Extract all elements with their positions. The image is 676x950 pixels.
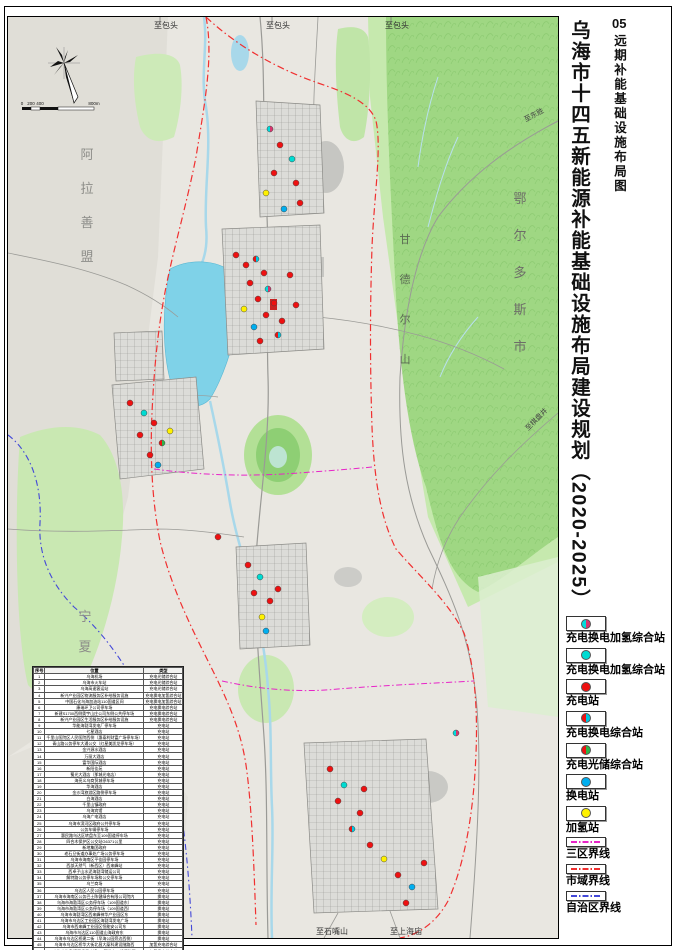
station-marker-hs — [263, 190, 269, 196]
svg-text:400: 400 — [36, 101, 44, 106]
legend-item-4: 充电光储综合站 — [566, 743, 670, 772]
station-marker-bs — [281, 206, 287, 212]
cell-type: 充电光储综合站 — [144, 680, 183, 686]
legend-item-0: 充电换电加氢综合站 — [566, 616, 670, 645]
legend-line-symbol — [566, 864, 606, 874]
station-marker-cs — [243, 262, 249, 268]
station-marker-cs — [277, 142, 283, 148]
legend-item-8: 市域界线 — [566, 864, 670, 888]
industrial-mid — [334, 567, 362, 587]
table-col-header: 序号 — [34, 668, 45, 674]
legend-label: 充电光储综合站 — [566, 759, 670, 772]
hill-center-pond — [269, 446, 287, 468]
cell-type: 加氢充电综合站 — [144, 942, 183, 948]
station-marker-cs — [245, 562, 251, 568]
station-marker-cs — [327, 766, 333, 772]
station-table: 序号位置类型 1乌海机场充电光储综合站2乌海市火车站充电光储综合站3乌海高速客运… — [33, 667, 183, 950]
station-marker-cs — [287, 272, 293, 278]
map-label: 至包头 — [385, 20, 409, 30]
station-marker-bs — [251, 324, 257, 330]
table-row: 45乌海市乌达区桥华大街北昌大厦科建设隧路西加氢充电综合站 — [34, 942, 183, 948]
station-marker-bs — [263, 628, 269, 634]
station-marker-cs — [297, 200, 303, 206]
station-marker-bs — [155, 462, 161, 468]
table-row: 37乌海市海南区公务巴士陈健绿合有限公司院内换电站 — [34, 893, 183, 899]
station-marker-chc — [257, 574, 263, 580]
station-marker-chc — [289, 156, 295, 162]
station-dot-icon — [581, 777, 591, 787]
station-marker-cs — [357, 810, 363, 816]
legend-label: 充电换电加氢综合站 — [566, 664, 670, 677]
cell-location: 乌海市海南区公务巴士陈健绿合有限公司院内 — [45, 893, 144, 899]
station-marker-cs — [293, 302, 299, 308]
station-marker-cs — [247, 280, 253, 286]
station-marker-cs — [257, 338, 263, 344]
station-marker-chc — [141, 410, 147, 416]
sheet-title: 远期补能基础设施布局图 — [610, 34, 629, 194]
legend-label: 加氢站 — [566, 822, 670, 835]
legend-point-symbol — [566, 743, 606, 758]
map-label: 至上海庙 — [390, 926, 422, 936]
map-label: 至包头 — [154, 20, 178, 30]
cell-location: 乌海市海勃湾区公务停车场（109国道西） — [45, 905, 144, 911]
cell-location: 乌海市海勃湾区公务停车场（109国道东） — [45, 899, 144, 905]
station-marker-chc — [341, 782, 347, 788]
green-patch-northwest — [134, 54, 182, 141]
station-marker-cs — [395, 872, 401, 878]
station-dot-icon — [581, 650, 591, 660]
station-dot-icon — [581, 682, 591, 692]
legend-label: 充电站 — [566, 695, 670, 708]
pond-north — [231, 35, 249, 71]
table-row: 12青山路公务停车大通公交（红星美凯龙停车场）充电站 — [34, 741, 183, 747]
legend-point-symbol — [566, 648, 606, 663]
station-marker-cs — [267, 598, 273, 604]
station-marker-cs — [279, 318, 285, 324]
station-marker-hs — [259, 614, 265, 620]
station-marker-cs — [361, 786, 367, 792]
legend-point-symbol — [566, 616, 606, 631]
table-row: 11千里山医院区人民医院西侧（惠泰利财富广场停车场）充电站 — [34, 735, 183, 741]
station-marker-cs — [255, 296, 261, 302]
cell-type: 充电光储综合站 — [144, 674, 183, 680]
cell-type: 充电换电综合站 — [144, 716, 183, 722]
legend-label: 换电站 — [566, 790, 670, 803]
station-marker-cs — [403, 900, 409, 906]
station-dot-icon — [581, 713, 591, 723]
legend-point-symbol — [566, 711, 606, 726]
station-dot-icon — [581, 808, 591, 818]
legend-label: 市域界线 — [566, 875, 670, 888]
station-marker-hs — [381, 856, 387, 862]
map-label: 至包头 — [266, 20, 290, 30]
station-marker-cs — [335, 798, 341, 804]
cell-type: 充电换电综合站 — [144, 704, 183, 710]
station-marker-cs — [251, 590, 257, 596]
cell-type: 充电换电加氢综合站 — [144, 692, 183, 698]
legend-line-symbol — [566, 837, 606, 847]
legend-item-9: 自治区界线 — [566, 891, 670, 915]
station-marker-hs — [241, 306, 247, 312]
cell-type: 充电换电综合站 — [144, 710, 183, 716]
legend-label: 自治区界线 — [566, 902, 670, 915]
station-marker-cs — [215, 534, 221, 540]
boundary-line-icon — [571, 868, 601, 870]
station-marker-cs — [275, 586, 281, 592]
cell-location: 乌海市乌达区桥华大街北昌大厦科建设隧路西 — [45, 942, 144, 948]
boundary-line-icon — [571, 895, 601, 897]
svg-text:800m: 800m — [88, 101, 100, 106]
station-marker-cs — [263, 312, 269, 318]
station-marker-cs — [271, 300, 277, 306]
station-marker-cs — [293, 180, 299, 186]
svg-text:200: 200 — [27, 101, 35, 106]
title-panel: 乌海市十四五新能源补能基础设施布局建设规划（2020-2025） 05 远期补能… — [560, 8, 670, 942]
main-title: 乌海市十四五新能源补能基础设施布局建设规划（2020-2025） — [568, 20, 588, 610]
green-patch-southeast — [362, 597, 414, 637]
cell-type: 充电光储综合站 — [144, 686, 183, 692]
green-patch-east-south — [478, 557, 558, 717]
map-area: 0200 400800m 阿拉善盟鄂尔多斯市宁夏回甘德尔山至包头至包头至包头至石… — [7, 16, 559, 939]
station-table-panel: 序号位置类型 1乌海机场充电光储综合站2乌海市火车站充电光储综合站3乌海高速客运… — [32, 666, 184, 950]
station-marker-cs — [421, 860, 427, 866]
station-marker-cs — [137, 432, 143, 438]
legend-label: 充电换电加氢综合站 — [566, 632, 670, 645]
legend-line-symbol — [566, 891, 606, 901]
station-marker-cs — [261, 270, 267, 276]
legend-point-symbol — [566, 679, 606, 694]
cell-location: 新建S1700西侧奥宇山庄公司东侧公共停车场 — [45, 710, 144, 716]
cell-location: 青山路公务停车大通公交（红星美凯龙停车场） — [45, 741, 144, 747]
legend-item-7: 三区界线 — [566, 837, 670, 861]
cell-location: 千里山医院区人民医院西侧（惠泰利财富广场停车场） — [45, 735, 144, 741]
station-marker-cs — [151, 420, 157, 426]
cell-type: 充电换电加氢综合站 — [144, 698, 183, 704]
station-dot-icon — [581, 619, 591, 629]
table-row: 44乌海市乌达区桥建二街（早海公园旁边西侧）换电站 — [34, 936, 183, 942]
station-marker-hs — [167, 428, 173, 434]
legend-item-6: 加氢站 — [566, 806, 670, 835]
legend-item-2: 充电站 — [566, 679, 670, 708]
legend-label: 三区界线 — [566, 848, 670, 861]
green-strip-north — [336, 27, 370, 141]
legend-item-5: 换电站 — [566, 774, 670, 803]
legend-item-1: 充电换电加氢综合站 — [566, 648, 670, 677]
cell-location: 乌海市乌达区桥建二街（早海公园旁边西侧） — [45, 936, 144, 942]
legend-point-symbol — [566, 806, 606, 821]
legend: 充电换电加氢综合站充电换电加氢综合站充电站充电换电综合站充电光储综合站换电站加氢… — [566, 616, 670, 917]
station-marker-cs — [367, 842, 373, 848]
legend-point-symbol — [566, 774, 606, 789]
legend-label: 充电换电综合站 — [566, 727, 670, 740]
table-row: 7新建S1700西侧奥宇山庄公司东侧公共停车场充电换电综合站 — [34, 710, 183, 716]
sheet-number: 05 — [612, 16, 626, 31]
legend-item-3: 充电换电综合站 — [566, 711, 670, 740]
boundary-line-icon — [571, 841, 601, 843]
station-dot-icon — [581, 745, 591, 755]
station-marker-bs — [409, 884, 415, 890]
map-label: 至石嘴山 — [316, 926, 348, 936]
station-marker-cs — [271, 170, 277, 176]
map-sheet: 0200 400800m 阿拉善盟鄂尔多斯市宁夏回甘德尔山至包头至包头至包头至石… — [0, 0, 676, 950]
station-marker-cs — [127, 400, 133, 406]
station-marker-cs — [233, 252, 239, 258]
station-marker-cs — [147, 452, 153, 458]
